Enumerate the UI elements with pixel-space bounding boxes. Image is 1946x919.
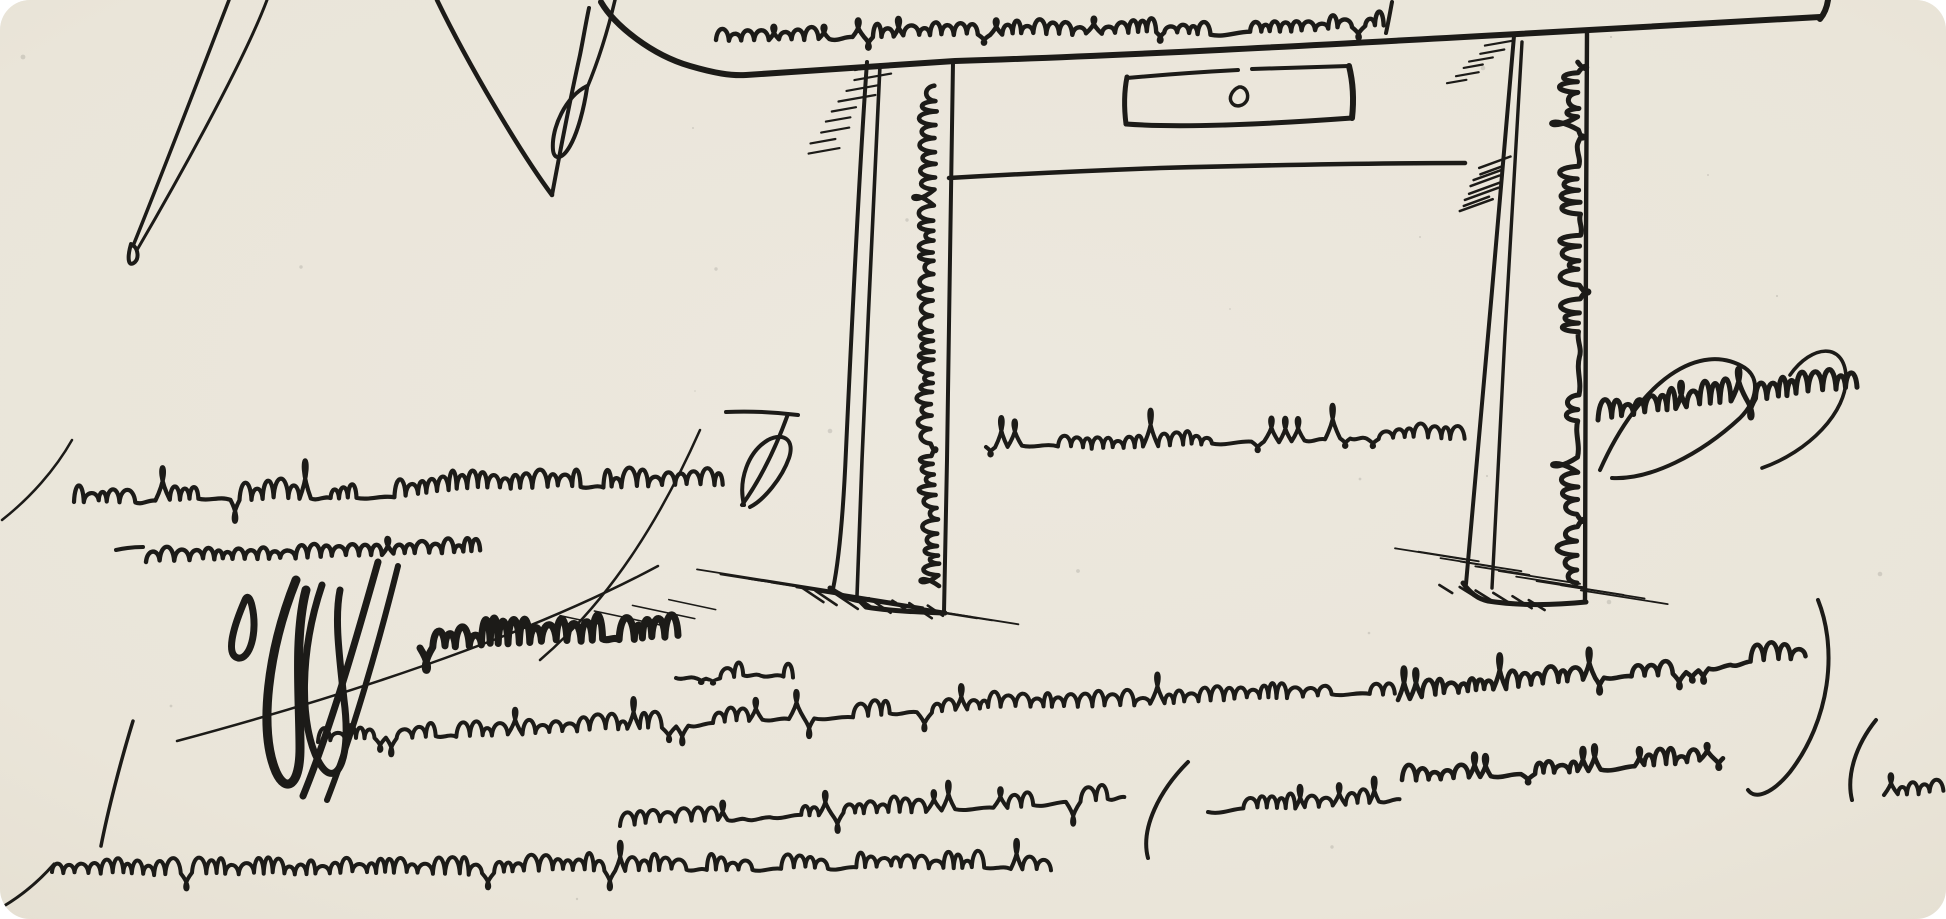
paper-speckle <box>1481 66 1486 71</box>
paper-speckle <box>828 429 833 434</box>
paper-speckle <box>1076 569 1080 573</box>
ink-drawing-svg <box>0 0 1946 919</box>
paper-speckle <box>1486 475 1488 477</box>
paper-speckle <box>1368 632 1371 635</box>
paper-speckle <box>694 390 696 392</box>
paper-speckle <box>692 127 694 129</box>
paper-speckle <box>576 898 578 900</box>
paper-speckle <box>1707 174 1709 176</box>
paper-speckle <box>714 267 717 270</box>
page-background: Pen-and-ink line drawing of a simple woo… <box>0 0 1946 919</box>
drawer-left-edge <box>1125 77 1127 124</box>
paper-speckle <box>1359 478 1362 481</box>
paper-speckle <box>1419 236 1421 238</box>
right-leg-right-edge <box>1585 32 1587 600</box>
paper-speckle <box>1229 308 1231 310</box>
artwork: Pen-and-ink line drawing of a simple woo… <box>0 0 1946 919</box>
paper-speckle <box>1776 295 1778 297</box>
paper-speckle <box>1607 600 1612 605</box>
artwork-caption: Pen-and-ink line drawing of a simple woo… <box>0 0 1 1</box>
paper-speckle <box>905 218 908 221</box>
paper-speckle <box>1878 572 1883 577</box>
paper-speckle <box>1330 845 1333 848</box>
paper-speckle <box>21 55 26 60</box>
paper-speckle <box>170 705 173 708</box>
paper-speckle <box>1610 36 1612 38</box>
paper-speckle <box>299 265 302 268</box>
